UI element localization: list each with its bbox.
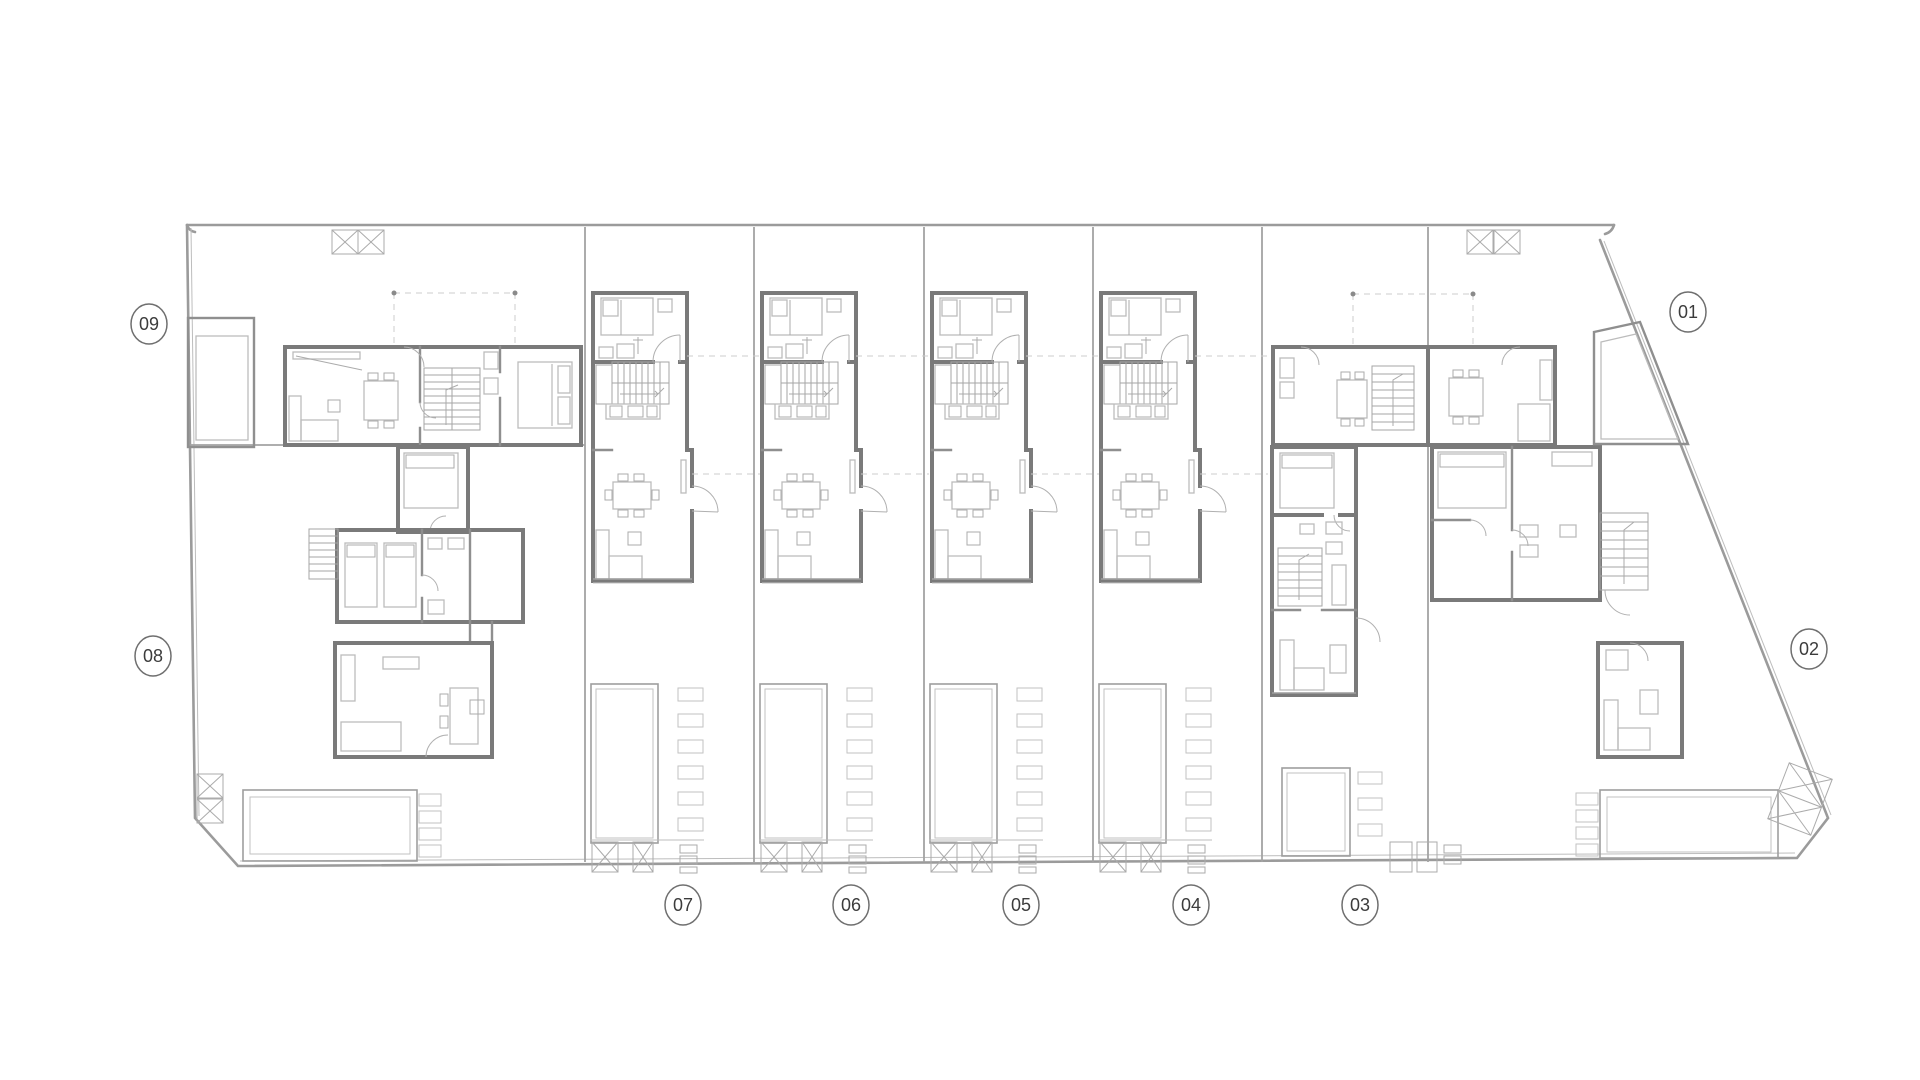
label-unit-03: 03 [1342, 885, 1378, 925]
unit-03-number: 03 [1350, 895, 1370, 915]
floor-plan-canvas: 09 08 01 02 07 06 05 04 [0, 0, 1920, 1080]
entry-planters [1390, 842, 1461, 872]
unit-06-number: 06 [841, 895, 861, 915]
unit-labels: 09 08 01 02 07 06 05 04 [131, 292, 1827, 925]
pool-steps [1358, 772, 1382, 836]
pool [1282, 768, 1350, 856]
stairs [424, 368, 480, 430]
pool [1600, 790, 1778, 858]
unit-07-house [590, 293, 760, 873]
label-unit-05: 05 [1003, 885, 1039, 925]
label-unit-06: 06 [833, 885, 869, 925]
unit-05-house [929, 293, 1099, 873]
unit-09-number: 09 [139, 314, 159, 334]
site-boundary [187, 225, 1831, 866]
pergola-top-right [1467, 230, 1520, 254]
unit-08-number: 08 [143, 646, 163, 666]
stairs [309, 529, 338, 579]
unit-05-number: 05 [1011, 895, 1031, 915]
unit-01-number: 01 [1678, 302, 1698, 322]
unit-08-house [197, 447, 523, 861]
floor-plan-page: 09 08 01 02 07 06 05 04 [0, 0, 1920, 1080]
top-right-house [1273, 292, 1555, 446]
label-unit-09: 09 [131, 304, 167, 344]
label-unit-07: 07 [665, 885, 701, 925]
unit-04-house [1098, 293, 1268, 873]
pool-steps [1576, 793, 1598, 856]
boundary-planter [197, 774, 223, 823]
unit-04-number: 04 [1181, 895, 1201, 915]
label-unit-08: 08 [135, 636, 171, 676]
stairs [1372, 366, 1414, 430]
unit-09-house [188, 291, 581, 448]
corner-house [1432, 322, 1832, 858]
unit-02-number: 02 [1799, 639, 1819, 659]
label-unit-01: 01 [1670, 292, 1706, 332]
stairs [1278, 548, 1322, 606]
stairs [1600, 513, 1648, 590]
label-unit-04: 04 [1173, 885, 1209, 925]
pergola-top-left [332, 230, 384, 254]
unit-06-house [759, 293, 929, 873]
pool-steps [419, 794, 441, 857]
pool [243, 790, 417, 861]
label-unit-02: 02 [1791, 629, 1827, 669]
unit-07-number: 07 [673, 895, 693, 915]
